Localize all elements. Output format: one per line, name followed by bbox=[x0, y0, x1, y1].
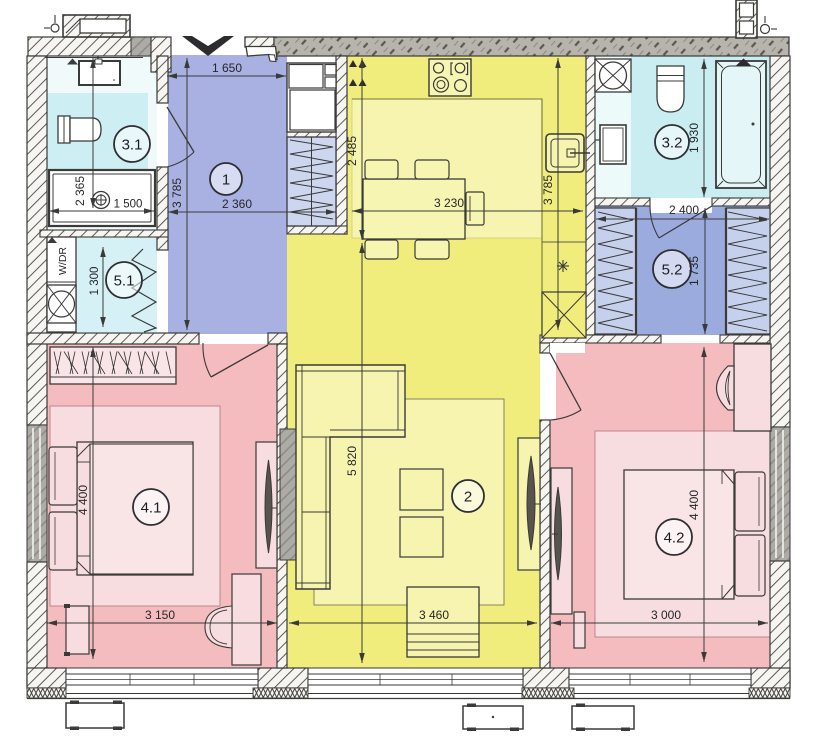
svg-text:1 930: 1 930 bbox=[687, 123, 701, 153]
svg-text:3 785: 3 785 bbox=[541, 175, 555, 205]
svg-text:5.1: 5.1 bbox=[114, 272, 135, 289]
svg-text:3 785: 3 785 bbox=[170, 178, 184, 208]
svg-text:5.2: 5.2 bbox=[662, 261, 683, 278]
svg-text:3 000: 3 000 bbox=[651, 608, 681, 622]
svg-text:4 400: 4 400 bbox=[687, 490, 701, 520]
svg-text:4.2: 4.2 bbox=[664, 529, 685, 546]
svg-text:3 150: 3 150 bbox=[145, 608, 175, 622]
svg-text:2 400: 2 400 bbox=[669, 203, 699, 217]
svg-text:5 820: 5 820 bbox=[345, 446, 359, 476]
svg-text:3 460: 3 460 bbox=[419, 608, 449, 622]
svg-text:1: 1 bbox=[222, 171, 230, 188]
svg-text:4 400: 4 400 bbox=[76, 485, 90, 515]
svg-text:2 485: 2 485 bbox=[345, 136, 359, 166]
svg-text:1 650: 1 650 bbox=[212, 61, 242, 75]
svg-text:2 365: 2 365 bbox=[73, 176, 87, 206]
svg-text:4.1: 4.1 bbox=[141, 499, 162, 516]
svg-text:3.2: 3.2 bbox=[662, 134, 683, 151]
svg-text:W/DR: W/DR bbox=[57, 247, 69, 275]
svg-text:2: 2 bbox=[464, 488, 472, 505]
svg-text:1 300: 1 300 bbox=[89, 267, 101, 296]
svg-text:2 360: 2 360 bbox=[222, 197, 252, 211]
svg-text:1 500: 1 500 bbox=[114, 199, 143, 211]
svg-text:1 735: 1 735 bbox=[687, 256, 701, 286]
svg-text:3.1: 3.1 bbox=[122, 136, 143, 153]
svg-text:3 230: 3 230 bbox=[434, 196, 464, 210]
